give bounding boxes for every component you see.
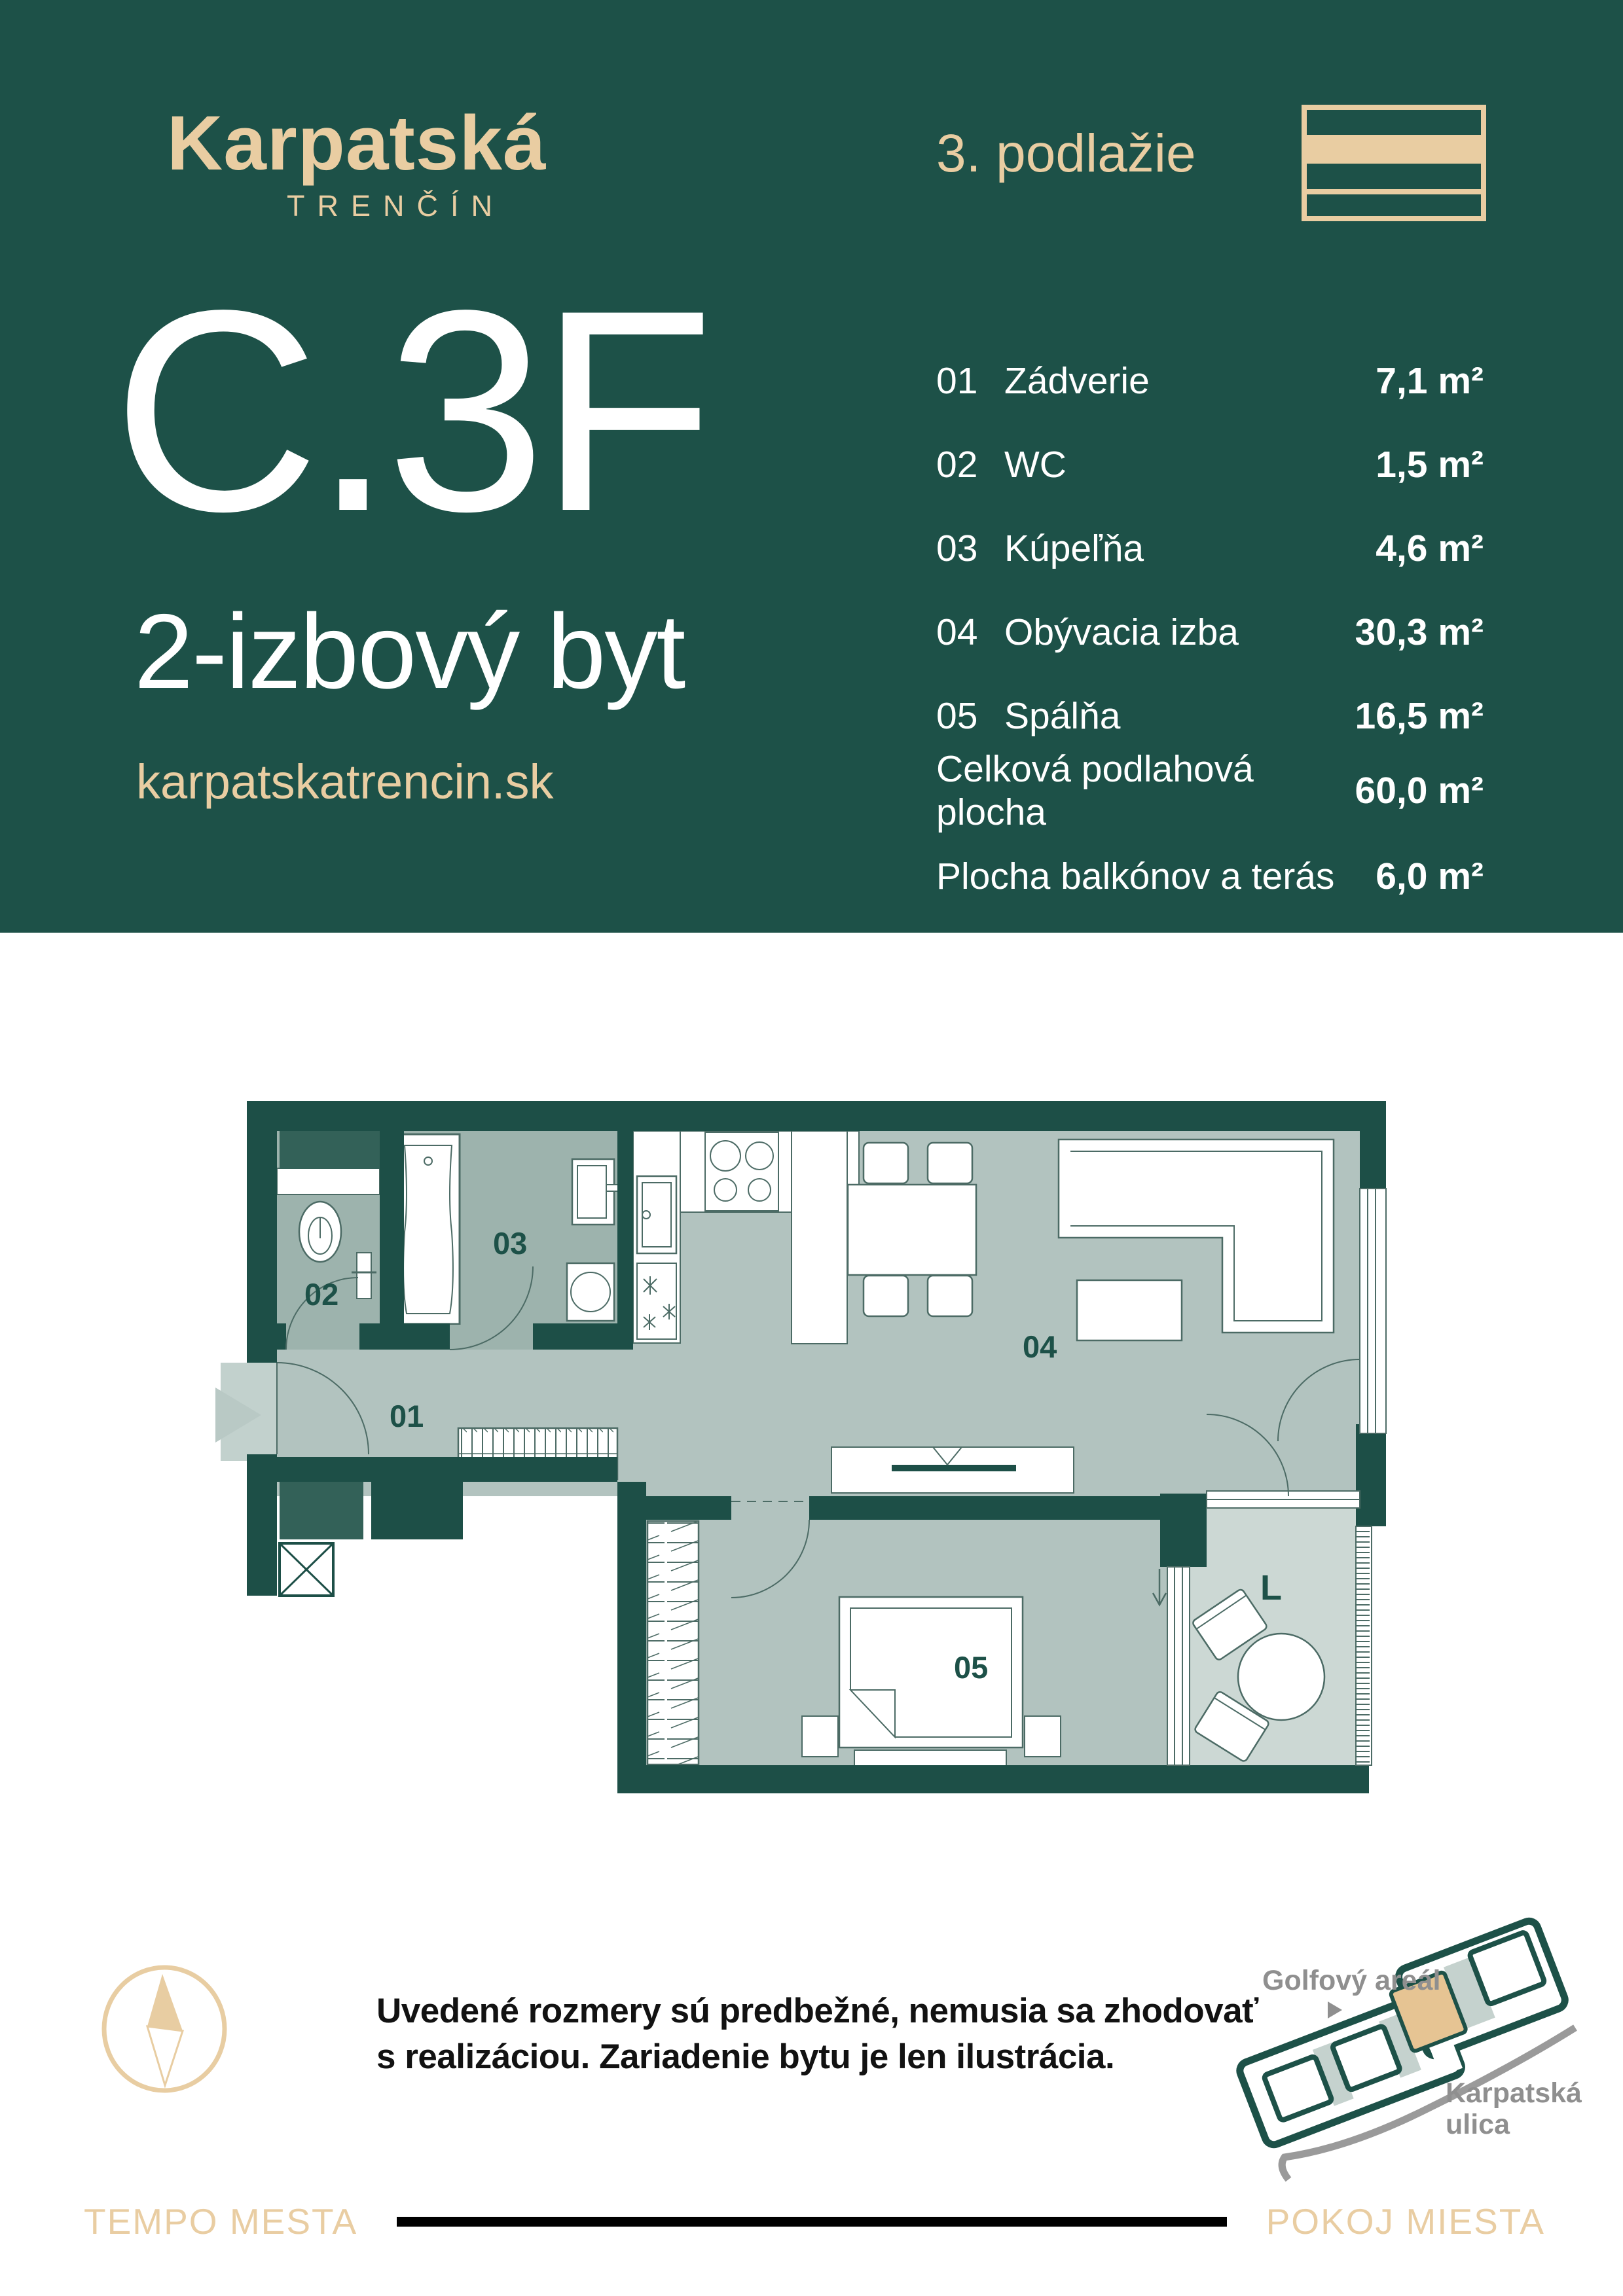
minimap-street-label: Karpatská xyxy=(1446,2077,1582,2109)
footer-divider-line xyxy=(397,2217,1226,2227)
shaft xyxy=(280,1482,363,1539)
room-row: 03 Kúpeľňa 4,6 m² xyxy=(936,507,1484,590)
totals: Celková podlahová plocha 60,0 m² Plocha … xyxy=(936,747,1484,919)
room-area: 1,5 m² xyxy=(1376,443,1484,486)
footer-left-slogan: TEMPO MESTA xyxy=(84,2200,357,2242)
room-row: 05 Spálňa 16,5 m² xyxy=(936,674,1484,758)
room-name: Kúpeľňa xyxy=(1004,527,1376,570)
wc-radiator xyxy=(357,1253,371,1299)
unit-code: C.3F xyxy=(113,267,708,554)
flat-datasheet-page: Karpatská TRENČÍN 3. podlažie C.3F 2-izb… xyxy=(0,0,1623,2296)
dining-chair xyxy=(864,1276,908,1316)
loggia-railing xyxy=(1356,1526,1372,1765)
room-name: Spálňa xyxy=(1004,694,1355,738)
bed-bench xyxy=(854,1750,1006,1767)
room-area: 16,5 m² xyxy=(1355,694,1484,738)
plan-label-02: 02 xyxy=(304,1277,338,1312)
header: Karpatská TRENČÍN 3. podlažie C.3F 2-izb… xyxy=(0,0,1623,933)
room-number: 05 xyxy=(936,694,1004,738)
dining-table xyxy=(848,1185,976,1275)
room-area: 30,3 m² xyxy=(1355,611,1484,654)
floor-level-icon xyxy=(1302,105,1486,221)
room-number: 02 xyxy=(936,443,1004,486)
disclaimer-line1: Uvedené rozmery sú predbežné, nemusia sa… xyxy=(376,1988,1258,2034)
floor-plan: 01 02 03 04 05 L xyxy=(208,1101,1425,1824)
plan-label-04: 04 xyxy=(1023,1329,1057,1364)
shaft xyxy=(280,1131,380,1169)
room-row: 01 Zádverie 7,1 m² xyxy=(936,339,1484,423)
brand-logo-subtitle: TRENČÍN xyxy=(167,191,507,221)
minimap-street-label2: ulica xyxy=(1446,2109,1510,2140)
room-list: 01 Zádverie 7,1 m² 02 WC 1,5 m² 03 Kúpeľ… xyxy=(936,339,1484,758)
room-name: WC xyxy=(1004,443,1376,486)
plan-label-loggia: L xyxy=(1260,1568,1282,1607)
coffee-table xyxy=(1077,1280,1182,1340)
tv xyxy=(892,1465,1016,1471)
core-wall xyxy=(371,1482,463,1539)
room-number: 01 xyxy=(936,359,1004,403)
brand-logo-title: Karpatská xyxy=(167,105,507,182)
dining-chair xyxy=(928,1143,972,1183)
loggia-table xyxy=(1238,1634,1324,1720)
floor-label: 3. podlažie xyxy=(936,123,1196,185)
living-window xyxy=(1360,1189,1386,1433)
bedroom-loggia-window xyxy=(1167,1567,1190,1765)
plan-label-01: 01 xyxy=(390,1399,424,1433)
disclaimer-line2: s realizáciou. Zariadenie bytu je len il… xyxy=(376,2034,1258,2080)
total-row: Plocha balkónov a terás 6,0 m² xyxy=(936,833,1484,919)
nightstand xyxy=(1025,1716,1061,1757)
compass-icon xyxy=(97,1965,234,2096)
minimap-area-label: Golfový areál xyxy=(1262,1965,1440,1996)
dining-chair xyxy=(864,1143,908,1183)
kitchen-dishwasher xyxy=(637,1263,676,1339)
footer-right-slogan: POKOJ MIESTA xyxy=(1266,2200,1545,2242)
room-row: 04 Obývacia izba 30,3 m² xyxy=(936,590,1484,674)
room-area: 4,6 m² xyxy=(1376,527,1484,570)
brand-logo: Karpatská TRENČÍN xyxy=(167,105,507,221)
room-number: 03 xyxy=(936,527,1004,570)
footer: TEMPO MESTA POKOJ MIESTA xyxy=(84,2200,1545,2242)
floor-plan-drawing: 01 02 03 04 05 L xyxy=(208,1101,1425,1821)
room-name: Obývacia izba xyxy=(1004,611,1355,654)
website-url: karpatskatrencin.sk xyxy=(136,754,554,810)
total-value: 60,0 m² xyxy=(1355,769,1484,812)
plan-label-05: 05 xyxy=(954,1650,988,1685)
dining-chair xyxy=(928,1276,972,1316)
room-area: 7,1 m² xyxy=(1376,359,1484,403)
total-label: Plocha balkónov a terás xyxy=(936,855,1376,898)
total-value: 6,0 m² xyxy=(1376,855,1484,898)
room-name: Zádverie xyxy=(1004,359,1376,403)
room-number: 04 xyxy=(936,611,1004,654)
bedroom-wardrobe xyxy=(647,1521,699,1765)
total-label: Celková podlahová plocha xyxy=(936,747,1355,834)
total-row: Celková podlahová plocha 60,0 m² xyxy=(936,747,1484,833)
room-row: 02 WC 1,5 m² xyxy=(936,423,1484,507)
location-minimap: Golfový areál Karpatská ulica xyxy=(1205,1898,1591,2186)
bed xyxy=(839,1597,1023,1748)
wc-sink-counter xyxy=(277,1168,380,1194)
nightstand xyxy=(802,1716,838,1757)
disclaimer: Uvedené rozmery sú predbežné, nemusia sa… xyxy=(376,1988,1258,2080)
plan-label-03: 03 xyxy=(493,1226,527,1261)
minimap-arrow xyxy=(1328,2001,1342,2018)
unit-type: 2-izbový byt xyxy=(134,599,684,705)
kitchen-tall-cabinet xyxy=(792,1131,847,1344)
